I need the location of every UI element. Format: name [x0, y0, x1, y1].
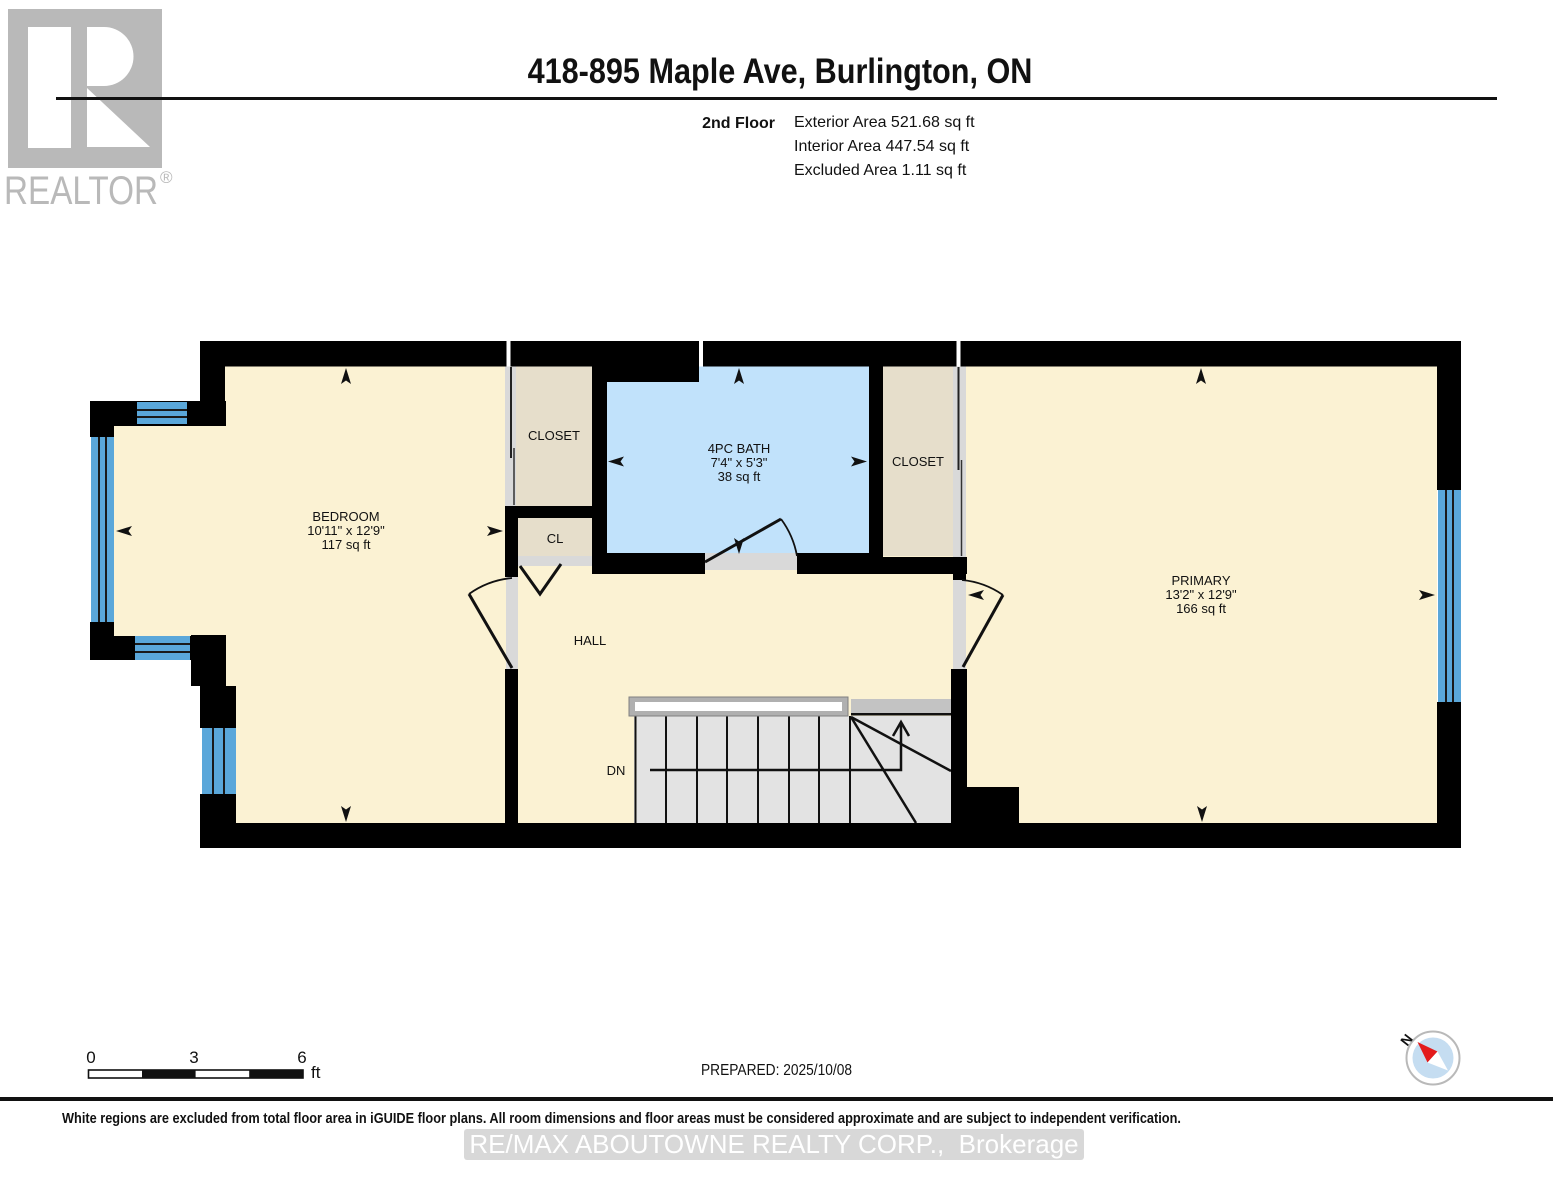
svg-text:CL: CL	[547, 531, 564, 546]
svg-text:DN: DN	[607, 763, 626, 778]
svg-text:117 sq ft: 117 sq ft	[322, 537, 371, 552]
svg-text:10'11" x 12'9": 10'11" x 12'9"	[307, 523, 385, 538]
svg-text:ft: ft	[311, 1063, 321, 1082]
svg-text:6: 6	[297, 1048, 306, 1067]
svg-text:0: 0	[86, 1048, 95, 1067]
svg-text:PRIMARY: PRIMARY	[1172, 573, 1231, 588]
svg-text:7'4" x 5'3": 7'4" x 5'3"	[711, 455, 768, 470]
svg-text:38 sq ft: 38 sq ft	[718, 469, 761, 484]
svg-text:HALL: HALL	[574, 633, 607, 648]
svg-text:CLOSET: CLOSET	[892, 454, 944, 469]
svg-text:PREPARED: 2025/10/08: PREPARED: 2025/10/08	[701, 1062, 852, 1079]
svg-text:166 sq ft: 166 sq ft	[1176, 601, 1226, 616]
svg-text:CLOSET: CLOSET	[528, 428, 580, 443]
svg-text:3: 3	[189, 1048, 198, 1067]
svg-text:13'2" x 12'9": 13'2" x 12'9"	[1165, 587, 1237, 602]
svg-text:4PC BATH: 4PC BATH	[708, 441, 771, 456]
svg-text:BEDROOM: BEDROOM	[312, 509, 379, 524]
